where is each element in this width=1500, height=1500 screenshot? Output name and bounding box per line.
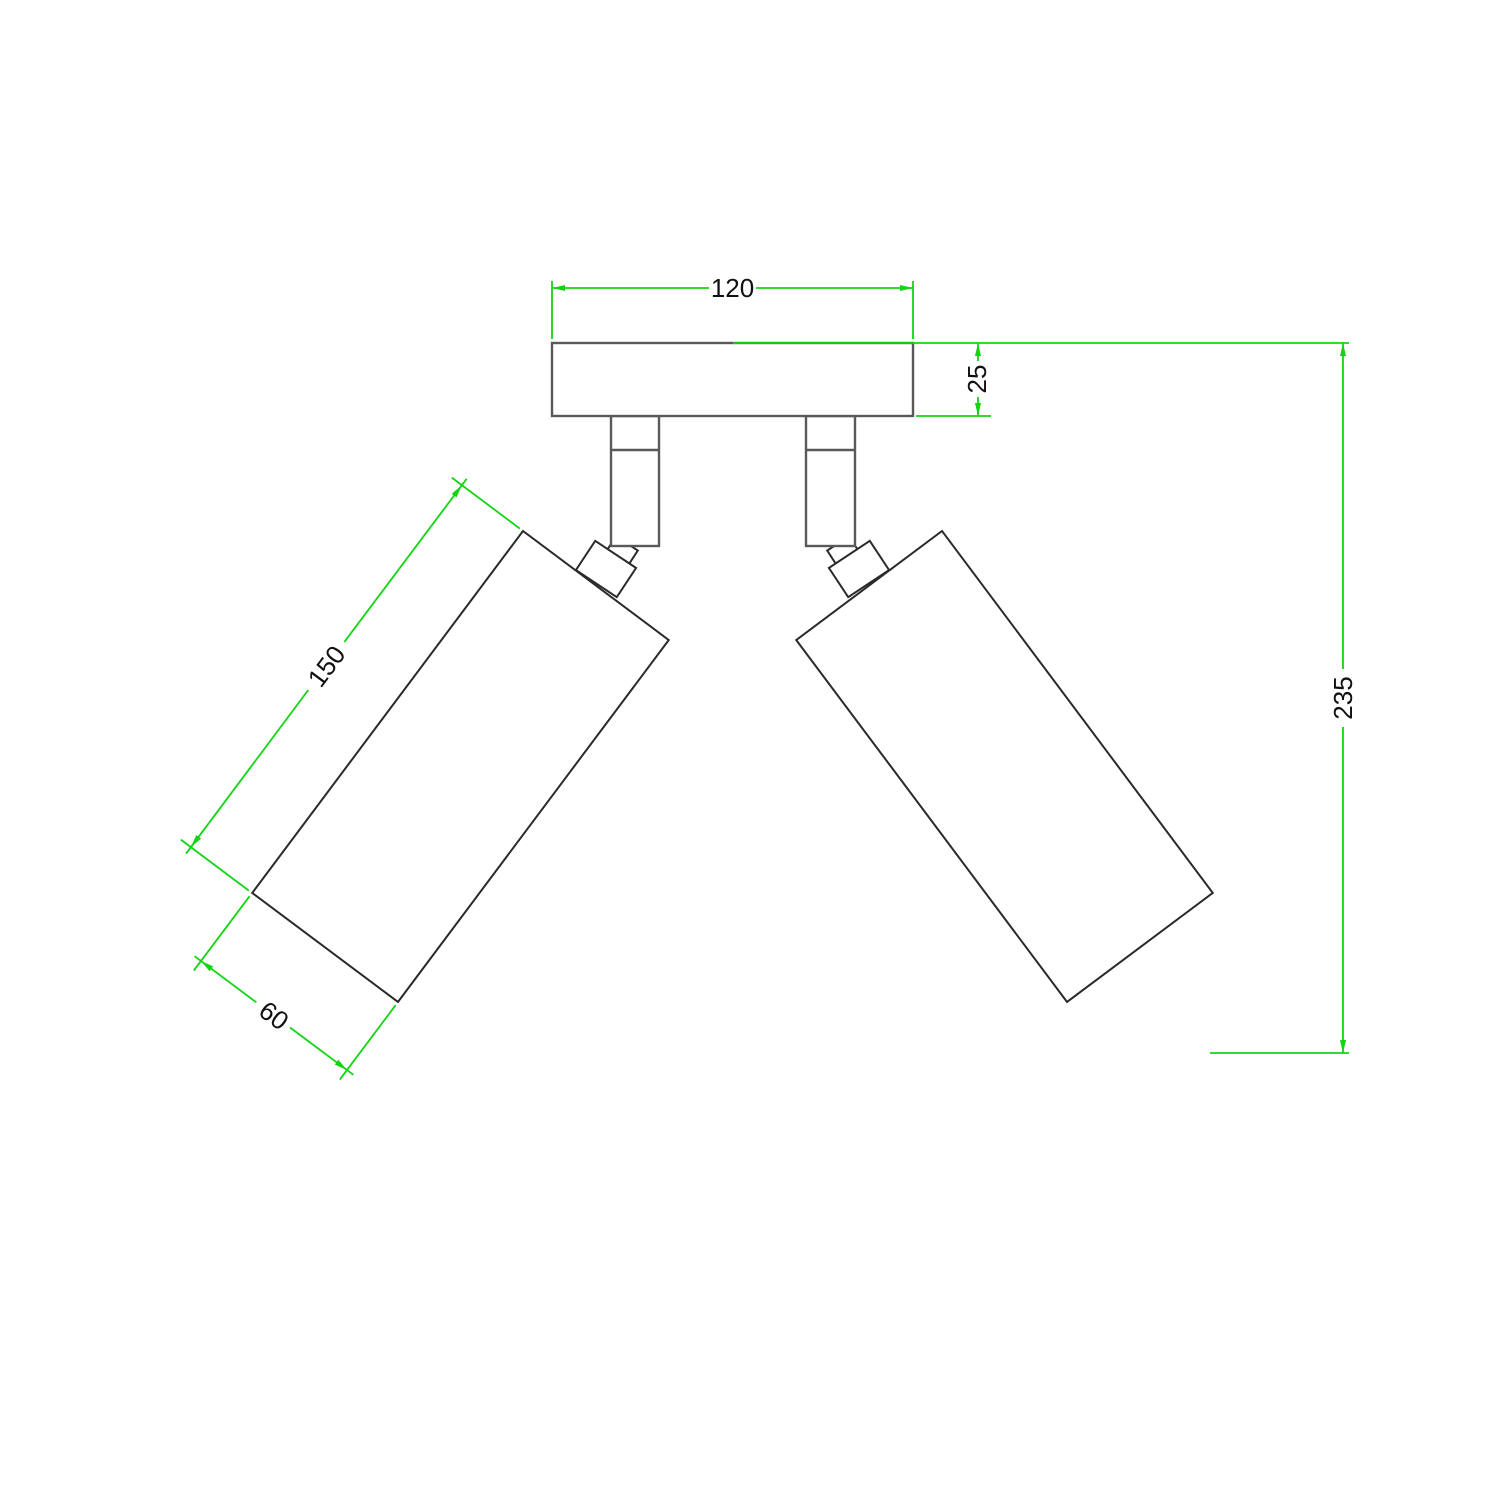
- dim-canopy-width: 120: [552, 273, 913, 339]
- arrowhead: [975, 343, 981, 356]
- dim-label-canopy-width: 120: [711, 273, 754, 303]
- extension-line: [194, 896, 250, 970]
- right-spot-body: [796, 531, 1212, 1002]
- dim-label-spot-length: 150: [301, 640, 351, 693]
- dimension-line: [186, 690, 308, 854]
- left-arm-tube: [611, 416, 659, 546]
- arrowhead: [975, 403, 981, 416]
- dim-label-spot-diameter: 60: [253, 995, 294, 1036]
- technical-drawing: 120 25 235 150: [0, 0, 1500, 1500]
- left-spot-body: [252, 531, 668, 1002]
- drawing-sheet: 120 25 235 150: [0, 0, 1500, 1500]
- right-arm-tube: [806, 416, 855, 546]
- dim-canopy-height: 25: [916, 343, 992, 416]
- arrowhead: [1340, 1040, 1346, 1053]
- arrowhead: [552, 285, 565, 291]
- arrowhead: [900, 285, 913, 291]
- canopy-plate: [552, 343, 913, 416]
- extension-line: [340, 1005, 396, 1079]
- dim-label-overall-height: 235: [1328, 676, 1358, 719]
- fixture: [252, 343, 1213, 1002]
- dim-label-canopy-height: 25: [962, 365, 992, 394]
- dimension-line: [344, 479, 466, 642]
- arrowhead: [1340, 343, 1346, 356]
